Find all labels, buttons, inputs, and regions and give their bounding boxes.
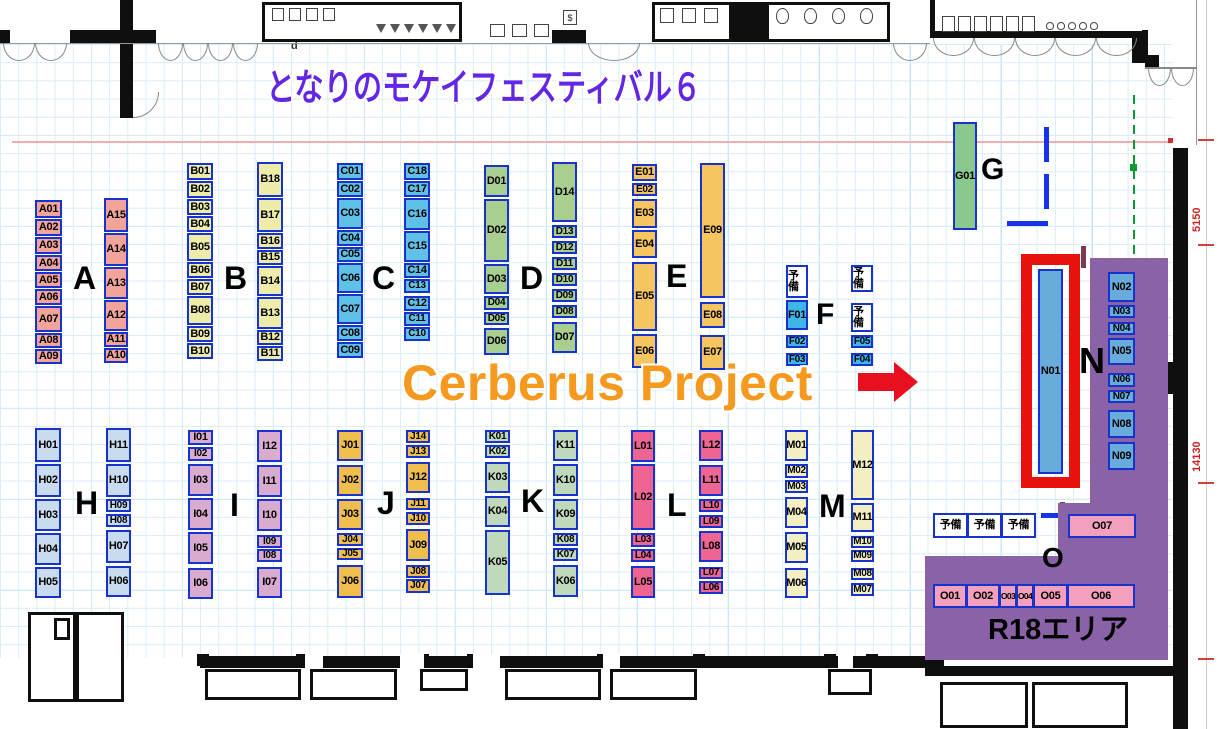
- column-letter-L: L: [667, 489, 687, 521]
- booth-D10: D10: [552, 273, 577, 286]
- booth-D14: D14: [552, 162, 577, 222]
- booth-E08: E08: [700, 302, 725, 328]
- urinal-icon: [418, 24, 428, 33]
- fixture-icon: [832, 8, 845, 24]
- booth-N03: N03: [1108, 305, 1135, 318]
- highlight-frame: [1021, 254, 1080, 488]
- urinal-icon: [404, 24, 414, 33]
- booth-M06: M06: [785, 568, 808, 598]
- room: [940, 682, 1028, 728]
- column-A-subcolumn-2: A15A14A13A12A11A10: [104, 198, 128, 363]
- column-letter-H: H: [75, 487, 98, 519]
- door-arc-icon: [1171, 68, 1194, 86]
- marker: [1168, 138, 1173, 143]
- booth-G01: G01: [953, 122, 977, 230]
- guide-line: [1196, 0, 1197, 145]
- booth-A15: A15: [104, 198, 128, 232]
- booth-D08: D08: [552, 305, 577, 318]
- booth-A07: A07: [35, 306, 62, 332]
- wall: [866, 654, 878, 666]
- column-N-subcolumn-1: N02N03N04N05N06N07N08N09: [1108, 272, 1135, 470]
- booth-A12: A12: [104, 300, 128, 331]
- column-letter-G: G: [981, 155, 1004, 185]
- fixture-icon: [1006, 16, 1019, 32]
- booth-C17: C17: [404, 181, 430, 197]
- booth-N06: N06: [1108, 373, 1135, 387]
- column-letter-C: C: [372, 262, 395, 294]
- booth-I03: I03: [188, 464, 213, 496]
- booth-L04: L04: [631, 549, 655, 562]
- booth-N02: N02: [1108, 272, 1135, 302]
- wall: [732, 2, 766, 42]
- column-D-subcolumn-2: D14D13D12D11D10D09D08D07: [552, 162, 577, 353]
- booth-C15: C15: [404, 231, 430, 262]
- booth-D11: D11: [552, 257, 577, 270]
- fixture-icon: [942, 16, 955, 32]
- booth-E01: E01: [632, 164, 657, 181]
- booth-B09: B09: [187, 326, 213, 342]
- booth-I06: I06: [188, 568, 213, 599]
- booth-M08: M08: [851, 568, 874, 580]
- booth-D09: D09: [552, 289, 577, 302]
- booth-A14: A14: [104, 233, 128, 266]
- booth-E04: E04: [632, 230, 657, 258]
- marker: [1044, 174, 1049, 209]
- booth-J02: J02: [337, 465, 363, 496]
- booth-K07: K07: [553, 548, 578, 561]
- marker: [1198, 139, 1214, 141]
- booth-C03: C03: [337, 198, 363, 229]
- booth-K04: K04: [485, 496, 510, 527]
- booth-E02: E02: [632, 183, 657, 196]
- booth-H03: H03: [35, 499, 61, 531]
- booth-H08: H08: [106, 514, 131, 527]
- column-L-subcolumn-1: L01L02L03L04L05: [631, 430, 655, 598]
- column-K-subcolumn-2: K11K10K09K08K07K06: [553, 430, 578, 597]
- fixture-icon: [323, 8, 335, 21]
- wall: [693, 654, 705, 666]
- column-J-subcolumn-2: J14J13J12J11J10J09J08J07: [406, 430, 430, 593]
- dimension-5150: 5150: [1191, 208, 1203, 232]
- booth-O07-rect: O07: [1068, 514, 1136, 538]
- booth-C09: C09: [337, 342, 363, 358]
- highlight-arrow-icon: [858, 362, 918, 402]
- booth-L05: L05: [631, 566, 655, 598]
- booth-I05: I05: [188, 532, 213, 564]
- booth-M11: M11: [851, 503, 874, 532]
- fixture-icon: [1022, 16, 1035, 32]
- booth-reserve-O-2-rect: 予備: [1001, 513, 1036, 538]
- booth-C10: C10: [404, 327, 430, 341]
- fixture-icon: [490, 24, 505, 37]
- booth-I07: I07: [257, 567, 282, 598]
- column-F-subcolumn-2: 予備予備F05F04: [851, 265, 873, 366]
- booth-C12: C12: [404, 296, 430, 311]
- booth-O01-rect: O01: [933, 584, 967, 608]
- booth-D02: D02: [484, 199, 509, 262]
- booth-L08: L08: [699, 531, 723, 562]
- booth-I09: I09: [257, 535, 282, 548]
- booth-I08: I08: [257, 549, 282, 562]
- booth-C06: C06: [337, 263, 363, 293]
- booth-M07: M07: [851, 583, 874, 596]
- booth-L06: L06: [699, 581, 723, 594]
- booth-D01: D01: [484, 165, 509, 197]
- column-M-subcolumn-2: M12M11M10M09M08M07: [851, 430, 874, 596]
- booth-O06: O06: [1067, 584, 1135, 608]
- column-letter-K: K: [521, 485, 544, 517]
- fixture-icon: [512, 24, 527, 37]
- booth-J11: J11: [406, 498, 430, 510]
- fixture-icon: [682, 8, 696, 23]
- booth-C05: C05: [337, 247, 363, 262]
- booth-H02: H02: [35, 464, 61, 497]
- door-opening: [838, 654, 853, 668]
- floor-map: となりのモケイフェスティバル６ Cerberus Project 5150 14…: [0, 0, 1218, 729]
- booth-O05-rect: O05: [1033, 584, 1068, 608]
- booth-B07: B07: [187, 279, 213, 295]
- booth-H11: H11: [106, 428, 131, 462]
- column-C-subcolumn-2: C18C17C16C15C14C13C12C11C10: [404, 163, 430, 341]
- fixture-icon: [1079, 22, 1087, 30]
- booth-A03: A03: [35, 237, 62, 254]
- r18-area-label: R18エリア: [988, 616, 1128, 645]
- booth-A05: A05: [35, 272, 62, 288]
- booth-B02: B02: [187, 181, 213, 198]
- fixture-icon: [1046, 22, 1054, 30]
- booth-H09: H09: [106, 499, 131, 512]
- booth-L11: L11: [699, 465, 723, 496]
- marker: [1081, 246, 1086, 268]
- room: [1032, 682, 1128, 728]
- column-I-subcolumn-2: I12I11I10I09I08I07: [257, 430, 282, 598]
- booth-reserve-O-0-rect: 予備: [933, 513, 968, 538]
- column-letter-N: N: [1079, 343, 1105, 379]
- door-opening: [400, 654, 424, 668]
- booth-B18: B18: [257, 162, 283, 197]
- column-letter-A: A: [73, 262, 96, 294]
- booth-I02: I02: [188, 447, 213, 461]
- booth-O04: O04: [1016, 584, 1034, 608]
- fixture-icon: [974, 16, 987, 32]
- room: [310, 669, 397, 700]
- booth-L03: L03: [631, 533, 655, 547]
- booth-M05: M05: [785, 532, 808, 563]
- fixture-icon: [704, 8, 718, 23]
- booth-B06: B06: [187, 262, 213, 278]
- booth-C14: C14: [404, 263, 430, 278]
- booth-B12: B12: [257, 330, 283, 345]
- column-K-subcolumn-1: K01K02K03K04K05: [485, 430, 510, 595]
- booth-D12: D12: [552, 241, 577, 254]
- booth-J13: J13: [406, 445, 430, 458]
- column-letter-E: E: [666, 260, 687, 292]
- booth-E03: E03: [632, 199, 657, 228]
- booth-J01: J01: [337, 430, 363, 461]
- column-A-subcolumn-1: A01A02A03A04A05A06A07A08A09: [35, 200, 62, 364]
- fixture-icon: [804, 8, 817, 24]
- booth-H07: H07: [106, 530, 131, 563]
- column-L-subcolumn-2: L12L11L10L09L08L07L06: [699, 430, 723, 594]
- booth-C02: C02: [337, 181, 363, 197]
- booth-F01: F01: [786, 300, 808, 330]
- booth-A06: A06: [35, 289, 62, 305]
- booth-A10: A10: [104, 348, 128, 363]
- booth-N05: N05: [1108, 338, 1135, 365]
- booth-M01: M01: [785, 430, 808, 461]
- booth-O05: O05: [1033, 584, 1068, 608]
- booth-K06: K06: [553, 565, 578, 597]
- wall: [70, 30, 156, 43]
- column-H-subcolumn-1: H01H02H03H04H05: [35, 428, 61, 598]
- booth-B01: B01: [187, 163, 213, 180]
- booth-A13: A13: [104, 267, 128, 299]
- fixture-icon: [776, 8, 789, 24]
- booth-D06: D06: [484, 328, 509, 355]
- booth-L12: L12: [699, 430, 723, 461]
- booth-M12: M12: [851, 430, 874, 500]
- booth-I04: I04: [188, 498, 213, 530]
- room: [54, 618, 70, 640]
- wall: [824, 654, 836, 666]
- fixture-icon: [289, 8, 301, 21]
- booth-D13: D13: [552, 225, 577, 238]
- booth-B05: B05: [187, 233, 213, 261]
- urinal-icon: [446, 24, 456, 33]
- booth-J03: J03: [337, 499, 363, 530]
- booth-H01: H01: [35, 428, 61, 462]
- booth-L09: L09: [699, 515, 723, 528]
- booth-I01: I01: [188, 430, 213, 445]
- booth-B14: B14: [257, 266, 283, 296]
- booth-C11: C11: [404, 312, 430, 326]
- booth-C04: C04: [337, 230, 363, 246]
- booth-O06-rect: O06: [1067, 584, 1135, 608]
- wall: [120, 0, 133, 118]
- door-opening: [305, 654, 323, 668]
- booth-C01: C01: [337, 163, 363, 180]
- fixture-icon: [990, 16, 1003, 32]
- marker: [1044, 127, 1049, 162]
- booth-B04: B04: [187, 216, 213, 232]
- booth-O02: O02: [966, 584, 1000, 608]
- booth-M09: M09: [851, 550, 874, 562]
- arrow-body: [858, 373, 896, 391]
- booth-L07: L07: [699, 567, 723, 579]
- booth-I12: I12: [257, 430, 282, 462]
- column-J-subcolumn-1: J01J02J03J04J05J06: [337, 430, 363, 598]
- booth-K02: K02: [485, 445, 510, 458]
- booth-L02: L02: [631, 464, 655, 530]
- booth-C13: C13: [404, 279, 430, 293]
- booth-reserve-O-1-rect: 予備: [967, 513, 1002, 538]
- event-title: となりのモケイフェスティバル６: [266, 57, 701, 111]
- booth-B13: B13: [257, 297, 283, 329]
- wall: [1173, 148, 1188, 729]
- booth-J05: J05: [337, 548, 363, 560]
- booth-H04: H04: [35, 533, 61, 565]
- column-E-subcolumn-2: E09E08E07: [700, 163, 725, 370]
- room: [505, 669, 601, 700]
- column-C-subcolumn-1: C01C02C03C04C05C06C07C08C09: [337, 163, 363, 358]
- booth-D07: D07: [552, 322, 577, 353]
- column-E-subcolumn-1: E01E02E03E04E05E06: [632, 164, 657, 368]
- booth-J09: J09: [406, 529, 430, 561]
- column-I-subcolumn-1: I01I02I03I04I05I06: [188, 430, 213, 599]
- booth-O04-rect: O04: [1016, 584, 1034, 608]
- guide-line: [0, 43, 930, 44]
- booth-M02: M02: [785, 464, 808, 478]
- booth-A01: A01: [35, 200, 62, 218]
- booth-O07: O07: [1068, 514, 1136, 538]
- column-D-subcolumn-1: D01D02D03D04D05D06: [484, 165, 509, 355]
- booth-O03-rect: O03: [999, 584, 1017, 608]
- booth-L10: L10: [699, 499, 723, 512]
- booth-K11: K11: [553, 430, 578, 461]
- marker: [1007, 221, 1048, 226]
- wall: [197, 654, 209, 666]
- door-opening: [603, 654, 620, 668]
- booth-J08: J08: [406, 565, 430, 578]
- booth-B10: B10: [187, 343, 213, 359]
- fixture-icon: [534, 24, 549, 37]
- marker: [1130, 164, 1137, 171]
- booth-reserve-F-1: 予備: [851, 303, 873, 332]
- booth-K10: K10: [553, 464, 578, 496]
- urinal-icon: [432, 24, 442, 33]
- booth-H10: H10: [106, 464, 131, 497]
- column-letter-D: D: [520, 262, 543, 294]
- room: [76, 612, 124, 702]
- booth-N07: N07: [1108, 390, 1135, 403]
- column-H-subcolumn-2: H11H10H09H08H07H06: [106, 428, 131, 597]
- room: [610, 669, 697, 700]
- survey-line: [1133, 95, 1135, 258]
- booth-O03: O03: [999, 584, 1017, 608]
- door-opening: [473, 654, 500, 668]
- guide-line: [1206, 0, 1207, 729]
- fixture-icon: [306, 8, 318, 21]
- wall: [552, 30, 586, 43]
- marker: [1198, 658, 1214, 660]
- booth-B17: B17: [257, 198, 283, 232]
- booth-K05: K05: [485, 530, 510, 595]
- booth-B15: B15: [257, 250, 283, 265]
- marker: [1198, 244, 1214, 246]
- room: [420, 669, 468, 691]
- column-letter-F: F: [816, 300, 834, 330]
- booth-J06: J06: [337, 565, 363, 598]
- fixture-icon: [1057, 22, 1065, 30]
- booth-A02: A02: [35, 219, 62, 236]
- booth-J12: J12: [406, 462, 430, 493]
- fixture-icon: [660, 8, 674, 23]
- dimension-14130: 14130: [1191, 441, 1203, 472]
- booth-B11: B11: [257, 346, 283, 361]
- booth-reserve-O-2: 予備: [1001, 513, 1036, 538]
- column-letter-M: M: [819, 490, 846, 522]
- column-letter-J: J: [377, 487, 395, 519]
- column-G-subcolumn-1: G01: [953, 122, 977, 230]
- highlight-label: Cerberus Project: [402, 354, 813, 412]
- urinal-icon: [376, 24, 386, 33]
- dimension-line: [12, 141, 1170, 143]
- booth-H06: H06: [106, 566, 131, 597]
- column-B-subcolumn-2: B18B17B16B15B14B13B12B11: [257, 162, 283, 361]
- column-B-subcolumn-1: B01B02B03B04B05B06B07B08B09B10: [187, 163, 213, 359]
- booth-M04: M04: [785, 497, 808, 528]
- column-F-subcolumn-1: 予備F01F02F03: [786, 265, 808, 366]
- booth-J07: J07: [406, 579, 430, 593]
- booth-E05: E05: [632, 262, 657, 331]
- fixture-icon: [958, 16, 971, 32]
- booth-B08: B08: [187, 296, 213, 325]
- booth-O02-rect: O02: [966, 584, 1000, 608]
- booth-reserve-O-0: 予備: [933, 513, 968, 538]
- booth-D05: D05: [484, 312, 509, 325]
- column-letter-B: B: [224, 262, 247, 294]
- booth-O01: O01: [933, 584, 967, 608]
- booth-N04: N04: [1108, 322, 1135, 335]
- fixture-icon: [1090, 22, 1098, 30]
- booth-B16: B16: [257, 233, 283, 249]
- booth-N08: N08: [1108, 410, 1135, 438]
- booth-K08: K08: [553, 533, 578, 546]
- booth-D03: D03: [484, 264, 509, 294]
- booth-K09: K09: [553, 499, 578, 530]
- elevator-symbol: $: [563, 10, 577, 25]
- booth-J10: J10: [406, 512, 430, 525]
- booth-B03: B03: [187, 199, 213, 215]
- arrow-head: [894, 362, 918, 402]
- booth-A04: A04: [35, 255, 62, 271]
- room: [828, 669, 872, 695]
- fixture-icon: [1068, 22, 1076, 30]
- booth-M03: M03: [785, 480, 808, 493]
- booth-F02: F02: [786, 335, 808, 348]
- fixture-icon: [860, 8, 873, 24]
- booth-C08: C08: [337, 325, 363, 341]
- booth-reserve-F-0: 予備: [851, 265, 873, 292]
- booth-J14: J14: [406, 430, 430, 443]
- column-M-subcolumn-1: M01M02M03M04M05M06: [785, 430, 808, 598]
- booth-reserve-O-1: 予備: [967, 513, 1002, 538]
- booth-A09: A09: [35, 349, 62, 364]
- wall: [925, 666, 1188, 676]
- booth-L01: L01: [631, 430, 655, 462]
- column-letter-I: I: [230, 489, 239, 521]
- booth-E09: E09: [700, 163, 725, 298]
- booth-J04: J04: [337, 533, 363, 546]
- column-letter-O: O: [1042, 544, 1064, 572]
- fixture-icon: [272, 8, 284, 21]
- booth-A08: A08: [35, 333, 62, 348]
- booth-I10: I10: [257, 499, 282, 531]
- booth-K01: K01: [485, 430, 510, 443]
- booth-N09: N09: [1108, 442, 1135, 470]
- room: [205, 669, 301, 700]
- booth-D04: D04: [484, 296, 509, 310]
- booth-H05: H05: [35, 567, 61, 598]
- booth-I11: I11: [257, 465, 282, 497]
- booth-C16: C16: [404, 198, 430, 230]
- marker: [1198, 482, 1214, 484]
- booth-C18: C18: [404, 163, 430, 180]
- urinal-icon: [390, 24, 400, 33]
- booth-A11: A11: [104, 332, 128, 347]
- booth-reserve-F-0: 予備: [786, 265, 808, 298]
- booth-F05: F05: [851, 335, 873, 348]
